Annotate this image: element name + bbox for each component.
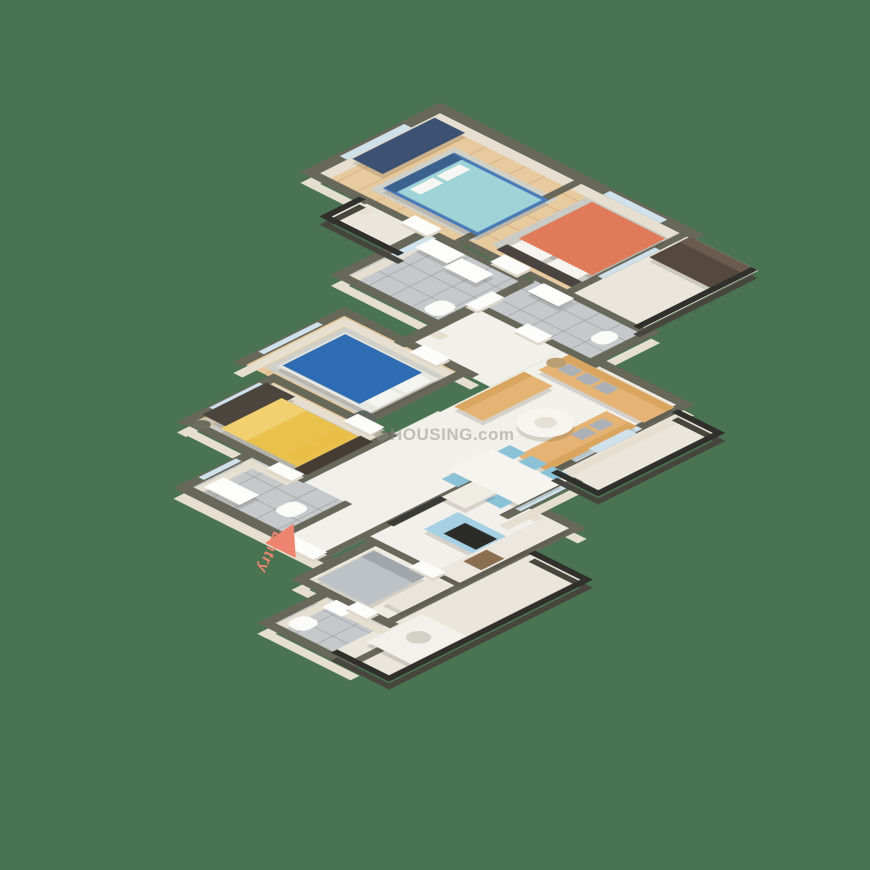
- floorplan-canvas: HOUSING.com Entry: [0, 0, 870, 870]
- watermark: HOUSING.com: [376, 425, 515, 445]
- housing-logo-icon: [373, 428, 390, 442]
- entry-label: Entry: [254, 528, 286, 576]
- watermark-text: HOUSING.com: [390, 425, 515, 445]
